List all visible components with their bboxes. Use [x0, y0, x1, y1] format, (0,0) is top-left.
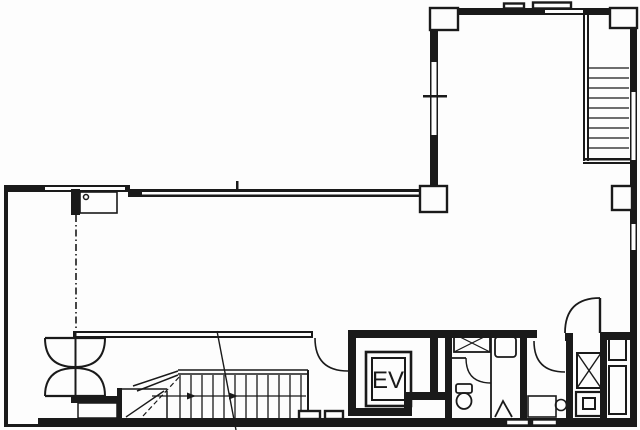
entry-mat	[78, 403, 117, 418]
stair-enclosure-wall-b	[587, 14, 589, 161]
window-right-upper	[632, 92, 636, 160]
toilet-left-wall	[445, 330, 452, 425]
corridor-door-arc	[315, 338, 348, 371]
window-upper-wing-top	[545, 10, 583, 13]
urinal	[495, 401, 512, 417]
pipe-shaft-outer	[576, 392, 602, 416]
kitchen-counter	[528, 396, 556, 417]
ev-shaft-left-wall	[348, 330, 356, 416]
vent	[506, 420, 529, 426]
wc-tank	[456, 384, 472, 393]
louver-top-a	[533, 3, 571, 9]
bottom-wall-thin-left	[8, 418, 38, 424]
kitchenette-door-arc	[534, 341, 565, 372]
pier-mid-right	[612, 186, 632, 210]
vent	[532, 420, 557, 426]
floor-plan-canvas: EV	[0, 0, 640, 430]
fire-escape-stairs	[583, 14, 631, 164]
corridor-wall-core	[75, 333, 311, 336]
section-cut-line	[217, 331, 236, 430]
cistern-tank	[495, 337, 516, 357]
canopy-post	[71, 189, 80, 215]
ev-shaft-right-wall	[430, 338, 438, 396]
closet-upper	[609, 338, 626, 360]
stair-enclosure-bottom-b	[583, 162, 631, 164]
entrance-door-arc	[565, 298, 600, 333]
pier-top-right	[610, 8, 637, 28]
door-jamb-stub	[565, 333, 573, 341]
louver-top-b	[504, 4, 524, 9]
window-top-long	[142, 192, 425, 195]
floor-plan-drawing: EV	[0, 0, 640, 430]
window-upper-wing-left	[432, 62, 437, 135]
wc-bowl	[457, 393, 472, 409]
stair-enclosure-wall-a	[583, 14, 585, 161]
fire-escape-treads	[589, 68, 629, 148]
window-top-left	[45, 187, 125, 190]
doors	[45, 298, 600, 418]
swing-arc	[75, 368, 105, 396]
corner-piers	[420, 8, 637, 212]
mullion-tick-left-wall	[423, 95, 447, 98]
ev-shaft-bottom-wall	[348, 408, 410, 416]
pipe-shaft-inner	[583, 398, 595, 409]
kitchen-sink-circle	[556, 400, 567, 411]
vent	[325, 411, 343, 419]
canopy-fitting-circle	[84, 195, 89, 200]
closet-lower	[609, 366, 626, 414]
elevator-label: EV	[372, 367, 404, 394]
vent	[299, 411, 320, 419]
toilet-right-wall	[520, 330, 527, 425]
toilet-area	[447, 334, 516, 419]
stair-enclosure-bottom-a	[583, 158, 631, 161]
kitchenette-right-wall	[566, 340, 573, 425]
elevator-shaft: EV	[348, 330, 445, 416]
pier-top-left	[430, 8, 458, 30]
internal-staircase	[120, 331, 308, 430]
swing-arc	[45, 368, 75, 396]
right-wall	[630, 8, 637, 427]
swing-arc	[75, 338, 105, 367]
mullion-tick-top-wall	[236, 181, 239, 191]
window-right-lower	[632, 224, 636, 250]
pipe-shafts	[576, 353, 602, 416]
closets	[609, 338, 626, 414]
left-boundary-wall	[4, 185, 8, 427]
pier-wing-corner	[420, 186, 447, 212]
double-swing-door	[45, 331, 117, 418]
swing-arc	[45, 338, 75, 367]
wc-door-arc	[466, 358, 491, 383]
kitchenette	[528, 396, 567, 417]
